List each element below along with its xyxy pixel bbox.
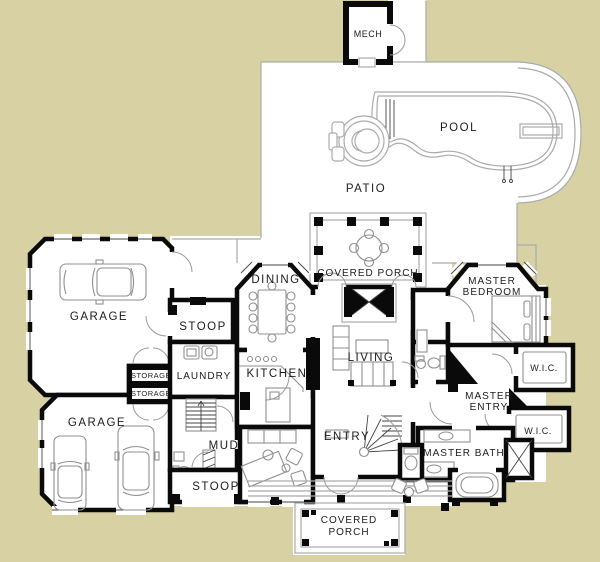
- master-bedroom-label-2: BEDROOM: [463, 287, 522, 298]
- toilet-closet: [400, 445, 422, 480]
- storage-top-label: STORAGE: [131, 371, 171, 380]
- master-entry-label-2: ENTRY: [470, 402, 509, 413]
- study-room: [240, 427, 313, 507]
- stoop-bottom-label: STOOP: [192, 481, 240, 493]
- covered-porch-bottom-label-2: PORCH: [328, 527, 369, 538]
- master-entry-label-1: MASTER: [465, 391, 513, 402]
- covered-porch-bottom-label-1: COVERED: [321, 515, 377, 526]
- wic-top-label: W.I.C.: [530, 363, 558, 373]
- entry-label: ENTRY: [324, 431, 370, 443]
- master-bath-label: MASTER BATH: [423, 448, 504, 459]
- stoop-top-label: STOOP: [179, 321, 227, 333]
- wic-bottom-label: W.I.C.: [524, 426, 552, 436]
- storage-bottom-label: STORAGE: [131, 389, 171, 398]
- garage-bottom-label: GARAGE: [68, 417, 126, 429]
- living-label: LIVING: [348, 352, 395, 364]
- floor-plan-drawing: MECH POOL PATIO COVERED PORCH DINING MAS…: [0, 0, 600, 562]
- floor-plan-canvas: MECH POOL PATIO COVERED PORCH DINING MAS…: [0, 0, 600, 562]
- mud-label: MUD: [209, 440, 240, 452]
- dining-label: DINING: [251, 274, 300, 286]
- master-bedroom-label-1: MASTER: [468, 276, 516, 287]
- porch-chair: [405, 488, 414, 497]
- tub-alcove: [450, 466, 504, 506]
- master-bedroom-room: [444, 261, 551, 345]
- patio-label: PATIO: [346, 183, 386, 195]
- laundry-label: LAUNDRY: [177, 371, 232, 382]
- mud-room: [170, 397, 242, 476]
- mech-label: MECH: [354, 29, 383, 39]
- garage-top-label: GARAGE: [70, 311, 128, 323]
- kitchen-room: [237, 346, 318, 427]
- pool-label: POOL: [440, 122, 478, 134]
- shower: [506, 440, 532, 478]
- covered-porch-top-label: COVERED PORCH: [317, 268, 418, 279]
- kitchen-label: KITCHEN: [247, 368, 308, 380]
